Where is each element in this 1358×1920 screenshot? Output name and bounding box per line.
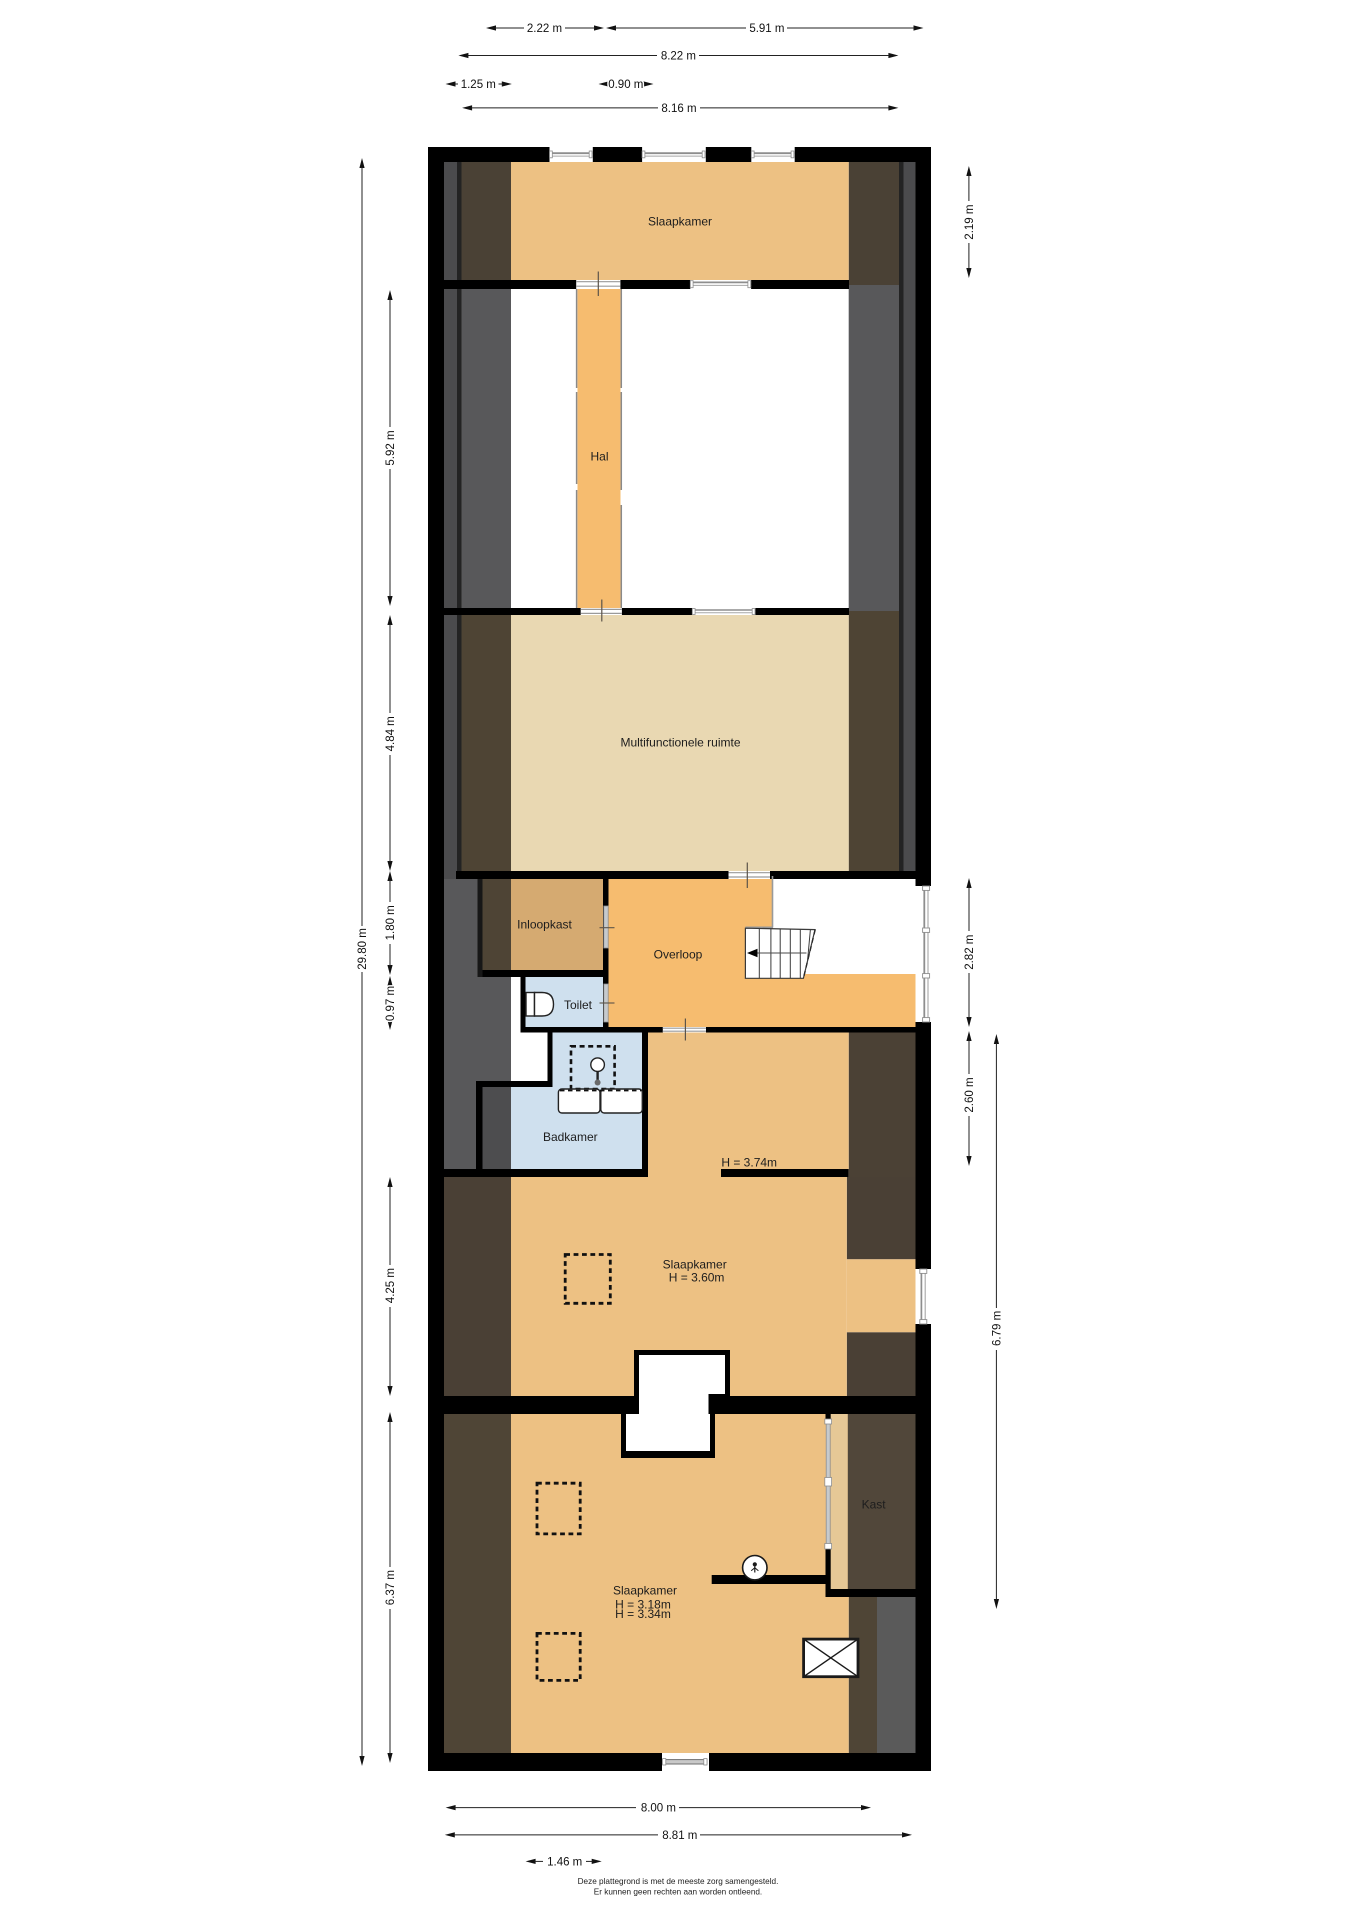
svg-text:8.22 m: 8.22 m bbox=[661, 51, 696, 63]
svg-text:5.91 m: 5.91 m bbox=[749, 23, 784, 35]
svg-text:4.84 m: 4.84 m bbox=[385, 716, 397, 751]
svg-text:8.81 m: 8.81 m bbox=[662, 1830, 697, 1842]
svg-text:6.79 m: 6.79 m bbox=[991, 1311, 1003, 1346]
svg-text:Overloop: Overloop bbox=[654, 948, 703, 962]
svg-text:4.25 m: 4.25 m bbox=[385, 1268, 397, 1303]
svg-text:8.00 m: 8.00 m bbox=[641, 1803, 676, 1815]
svg-text:2.22 m: 2.22 m bbox=[527, 23, 562, 35]
svg-text:Kast: Kast bbox=[862, 1498, 887, 1512]
svg-text:Slaapkamer: Slaapkamer bbox=[663, 1258, 727, 1272]
svg-text:6.37 m: 6.37 m bbox=[385, 1570, 397, 1605]
svg-text:29.80 m: 29.80 m bbox=[357, 928, 369, 970]
svg-text:H = 3.60m: H = 3.60m bbox=[669, 1271, 725, 1285]
svg-text:0.90 m: 0.90 m bbox=[608, 79, 643, 91]
svg-text:8.16 m: 8.16 m bbox=[661, 103, 696, 115]
svg-text:Toilet: Toilet bbox=[564, 998, 593, 1012]
svg-text:1.46 m: 1.46 m bbox=[547, 1856, 582, 1868]
svg-text:0.97 m: 0.97 m bbox=[385, 986, 397, 1021]
svg-text:Slaapkamer: Slaapkamer bbox=[648, 215, 712, 229]
svg-text:Badkamer: Badkamer bbox=[543, 1130, 598, 1144]
svg-text:Multifunctionele ruimte: Multifunctionele ruimte bbox=[620, 736, 740, 750]
svg-text:2.60 m: 2.60 m bbox=[964, 1077, 976, 1112]
svg-text:Deze plattegrond is met de mee: Deze plattegrond is met de meeste zorg s… bbox=[578, 1877, 779, 1886]
svg-text:H = 3.34m: H = 3.34m bbox=[615, 1607, 671, 1621]
svg-text:2.19 m: 2.19 m bbox=[964, 205, 976, 240]
svg-text:1.25 m: 1.25 m bbox=[461, 79, 496, 91]
svg-text:Hal: Hal bbox=[590, 450, 608, 464]
svg-text:5.92 m: 5.92 m bbox=[385, 430, 397, 465]
svg-text:1.80 m: 1.80 m bbox=[385, 905, 397, 940]
svg-text:2.82 m: 2.82 m bbox=[964, 935, 976, 970]
svg-text:H = 3.74m: H = 3.74m bbox=[721, 1156, 777, 1170]
svg-text:Inloopkast: Inloopkast bbox=[517, 918, 572, 932]
svg-text:Er kunnen geen rechten aan wor: Er kunnen geen rechten aan worden ontlee… bbox=[594, 1888, 762, 1897]
svg-text:Slaapkamer: Slaapkamer bbox=[613, 1583, 677, 1597]
